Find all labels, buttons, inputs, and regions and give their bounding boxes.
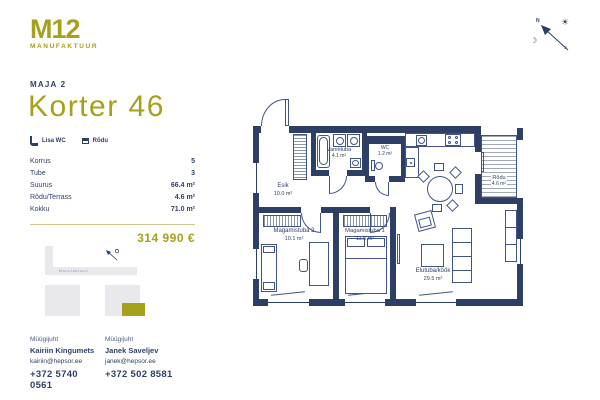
desk (309, 242, 329, 286)
row-label: Rõdu/Terrass (30, 194, 72, 201)
floorplan: Esik 10.0 m² Vannituba 4.1 m² WC 1.2 m² … (253, 106, 523, 312)
site-compass-icon (103, 248, 121, 264)
window-opening-mark (419, 291, 453, 296)
window (256, 249, 257, 279)
price: 314 990 € (30, 231, 195, 245)
building-label: MAJA 2 (30, 80, 66, 89)
door-leaf (388, 182, 389, 196)
balcony-icon (82, 138, 89, 144)
sofa-cushion-line (505, 227, 517, 228)
contact-name: Janek Saveljev (105, 346, 177, 355)
burner (455, 141, 458, 144)
tv (397, 234, 400, 264)
room-area: 4.6 m² (491, 181, 507, 187)
compass: N ☀ ☽ S (530, 18, 578, 60)
shelf-line (452, 256, 472, 257)
row-label: Kokku (30, 206, 49, 213)
wall-segment (309, 299, 345, 306)
chair (446, 199, 459, 212)
door-leaf (329, 176, 330, 194)
entrance-door-leaf (285, 99, 289, 126)
contact-name: Kairiin Kingumets (30, 346, 102, 355)
room-area: 4.1 m² (317, 154, 361, 160)
table-row: Suurus 66.4 m² (30, 182, 195, 193)
contact-card: Müügijuht Kairiin Kingumets kairiin@heps… (30, 336, 102, 391)
burner (455, 136, 458, 139)
wall-segment (333, 207, 339, 299)
door-arc (375, 182, 389, 196)
site-building-block (45, 285, 80, 316)
wardrobe (293, 134, 307, 180)
wall-segment (456, 299, 523, 306)
coffee-table (421, 244, 444, 267)
room-label: Esik (259, 183, 307, 190)
row-label: Korrus (30, 158, 51, 165)
washing-machine-drum (336, 137, 344, 145)
wc-icon (30, 136, 38, 146)
table-row: Rõdu/Terrass 4.6 m² (30, 194, 195, 205)
chair (434, 163, 444, 171)
logo-subtitle: MANUFAKTUUR (30, 43, 98, 50)
wardrobe (343, 215, 387, 227)
compass-arrow-icon (536, 22, 576, 56)
site-map: Manufaktuuri (45, 246, 155, 318)
contact-email[interactable]: janek@hepsor.ee (105, 358, 177, 365)
row-label: Suurus (30, 182, 52, 189)
wall-segment (517, 264, 523, 306)
dining-table (427, 176, 453, 202)
wall-segment (289, 126, 475, 133)
room-label: Magamistuba 2 (257, 228, 331, 235)
row-value: 66.4 m² (171, 182, 195, 189)
street-label: Manufaktuuri (59, 269, 135, 273)
window (268, 302, 309, 303)
feature-lisa-wc: Lisa WC (30, 136, 66, 146)
wall-segment (253, 126, 259, 163)
chair (455, 184, 463, 194)
entrance-door-arc (261, 99, 285, 126)
window (520, 239, 521, 264)
wall-segment (517, 128, 523, 140)
row-label: Tube (30, 170, 46, 177)
sofa-cushion-line (505, 244, 517, 245)
window (256, 163, 257, 193)
contact-card: Müügijuht Janek Saveljev janek@hepsor.ee… (105, 336, 177, 380)
window (416, 302, 456, 303)
table-row: Kokku 71.0 m² (30, 206, 195, 217)
contact-phone[interactable]: +372 502 8581 (105, 369, 177, 380)
brochure-page: M12 MANUFAKTUUR MAJA 2 Korter 46 Lisa WC… (0, 0, 600, 400)
logo[interactable]: M12 MANUFAKTUUR (30, 16, 98, 50)
blanket-line (345, 258, 387, 259)
wall-segment (475, 198, 523, 204)
table-row: Tube 3 (30, 170, 195, 181)
contact-role: Müügijuht (30, 336, 102, 343)
balcony-deck (481, 135, 517, 198)
burner (448, 136, 451, 139)
row-value: 4.6 m² (175, 194, 195, 201)
contact-email[interactable]: kairiin@hepsor.ee (30, 358, 102, 365)
room-area: 29.5 m² (401, 276, 465, 282)
feature-label: Rõdu (93, 138, 108, 144)
window (345, 302, 385, 303)
burner (448, 141, 451, 144)
chair (432, 204, 442, 212)
wall-segment (253, 207, 301, 213)
table-row: Korrus 5 (30, 158, 195, 169)
chair (449, 166, 462, 179)
feature-label: Lisa WC (42, 138, 66, 144)
vent-dot (410, 162, 412, 164)
room-label: Elutuba/köök (401, 268, 465, 275)
wall-segment (517, 204, 523, 239)
toilet-bowl (375, 162, 383, 170)
row-value: 71.0 m² (171, 206, 195, 213)
wall-segment (253, 299, 268, 306)
washing-machine-drum (350, 137, 358, 145)
row-value: 5 (191, 158, 195, 165)
pillow (263, 246, 275, 253)
page-title: Korter 46 (28, 90, 165, 124)
shelf-line (452, 242, 472, 243)
door-arc (329, 176, 347, 194)
row-value: 3 (191, 170, 195, 177)
wall-segment (321, 207, 370, 213)
wall-segment (385, 299, 416, 306)
chair (417, 170, 430, 183)
site-highlight-building (122, 303, 145, 316)
sofa (505, 210, 517, 262)
feature-rodu: Rõdu (82, 136, 108, 146)
feature-badges: Lisa WC Rõdu (30, 136, 108, 146)
sink-basin (352, 160, 359, 166)
contact-phone[interactable]: +372 5740 0561 (30, 369, 102, 391)
wall-segment (390, 207, 396, 299)
room-area: 10.0 m² (259, 191, 307, 197)
bed-footer (263, 282, 275, 290)
room-area: 1.2 m² (369, 152, 401, 158)
logo-mark: M12 (30, 16, 98, 43)
desk-chair (299, 259, 308, 272)
contact-role: Müügijuht (105, 336, 177, 343)
sink-basin (418, 137, 425, 144)
divider-line (30, 224, 195, 225)
wall-segment (347, 170, 367, 176)
wardrobe (263, 215, 301, 227)
room-label: Magamistuba 1 (337, 228, 393, 234)
room-area: 11.5 m² (337, 236, 393, 242)
room-area: 10.1 m² (257, 236, 331, 242)
wall-segment (311, 170, 329, 176)
